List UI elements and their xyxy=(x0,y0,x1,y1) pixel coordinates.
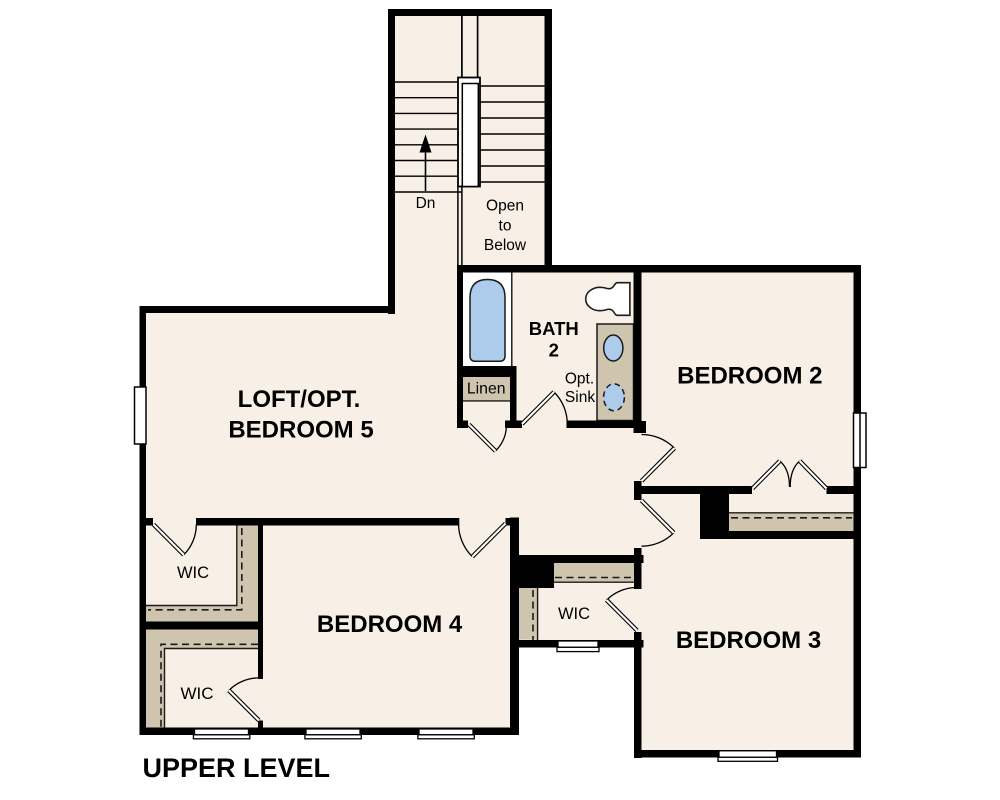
svg-text:WIC: WIC xyxy=(177,564,209,582)
svg-text:BEDROOM 3: BEDROOM 3 xyxy=(676,627,821,654)
svg-text:Below: Below xyxy=(484,237,527,254)
svg-text:to: to xyxy=(499,217,512,234)
svg-text:WIC: WIC xyxy=(558,605,590,623)
svg-text:Opt.: Opt. xyxy=(565,371,594,388)
svg-text:Dn: Dn xyxy=(416,195,436,212)
svg-text:Sink: Sink xyxy=(565,389,595,406)
svg-text:Linen: Linen xyxy=(467,380,506,397)
svg-text:Open: Open xyxy=(486,198,524,215)
svg-text:UPPER LEVEL: UPPER LEVEL xyxy=(143,753,331,783)
svg-text:BEDROOM 5: BEDROOM 5 xyxy=(228,416,373,443)
svg-text:LOFT/OPT.: LOFT/OPT. xyxy=(238,386,361,413)
svg-text:BEDROOM 2: BEDROOM 2 xyxy=(677,362,822,389)
svg-text:BEDROOM 4: BEDROOM 4 xyxy=(317,611,463,638)
svg-text:BATH: BATH xyxy=(529,318,579,339)
svg-text:2: 2 xyxy=(549,340,559,361)
svg-text:WIC: WIC xyxy=(180,684,213,703)
